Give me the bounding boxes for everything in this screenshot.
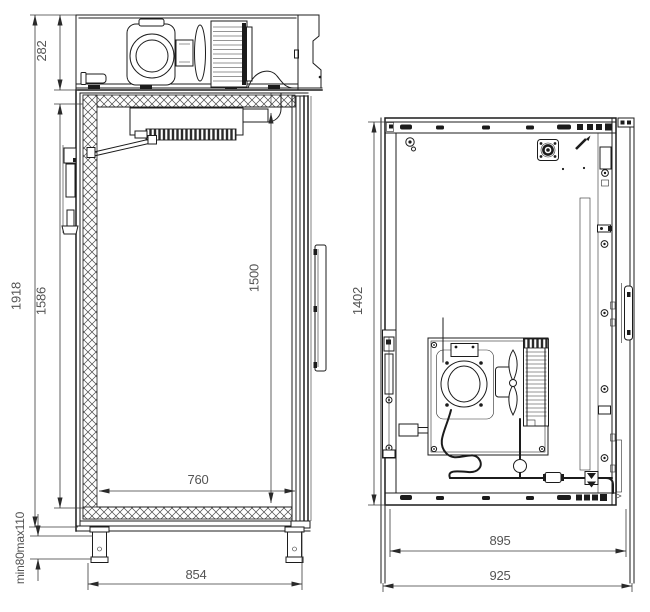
dim-leg-height: min80max110: [13, 511, 27, 584]
rivet-dot: [562, 168, 564, 170]
compressor-side: [127, 19, 175, 85]
side-section-view: 282 1918 1586 1500 760 854 min80max110: [9, 15, 327, 590]
pipe-channel: [580, 198, 590, 470]
dim-interior-front-height: 1500: [247, 264, 262, 292]
insulation-bottom: [83, 507, 292, 519]
dim-body-width: 895: [489, 533, 510, 548]
rivet-dot: [583, 167, 585, 169]
cabinet-body-section: [76, 90, 322, 531]
rear-view: 1402 895 925: [350, 118, 634, 592]
insulation-top: [83, 95, 295, 107]
unit-front-cover: [295, 15, 322, 88]
leg-rear: [90, 527, 109, 563]
dim-interior-depth: 760: [187, 472, 208, 487]
technical-drawing-canvas: 282 1918 1586 1500 760 854 min80max110: [0, 0, 650, 612]
condenser-side: [211, 21, 252, 87]
condensing-unit-side: [76, 15, 322, 90]
pipe-stub: [81, 73, 106, 85]
dim-panel-height: 1402: [350, 287, 365, 315]
fan-blade-side: [195, 25, 206, 81]
dim-unit-height: 282: [34, 40, 49, 61]
right-side-panel-edge: [617, 118, 635, 583]
dim-overall-height: 1918: [9, 282, 24, 310]
fan-motor-side: [176, 40, 193, 66]
condenser-rear: [524, 339, 549, 426]
pipe-flange: [538, 140, 559, 161]
dim-interior-rear-height: 1586: [34, 287, 49, 315]
dim-overall-width: 925: [489, 568, 510, 583]
rear-handle: [625, 286, 633, 340]
door-handle: [314, 245, 327, 371]
insulation-back: [83, 95, 97, 519]
leg-front: [285, 527, 304, 563]
door-section: [291, 96, 326, 528]
dim-overall-depth: 854: [185, 567, 206, 582]
refrigerated-cabinet-drawing: 282 1918 1586 1500 760 854 min80max110: [0, 0, 650, 612]
